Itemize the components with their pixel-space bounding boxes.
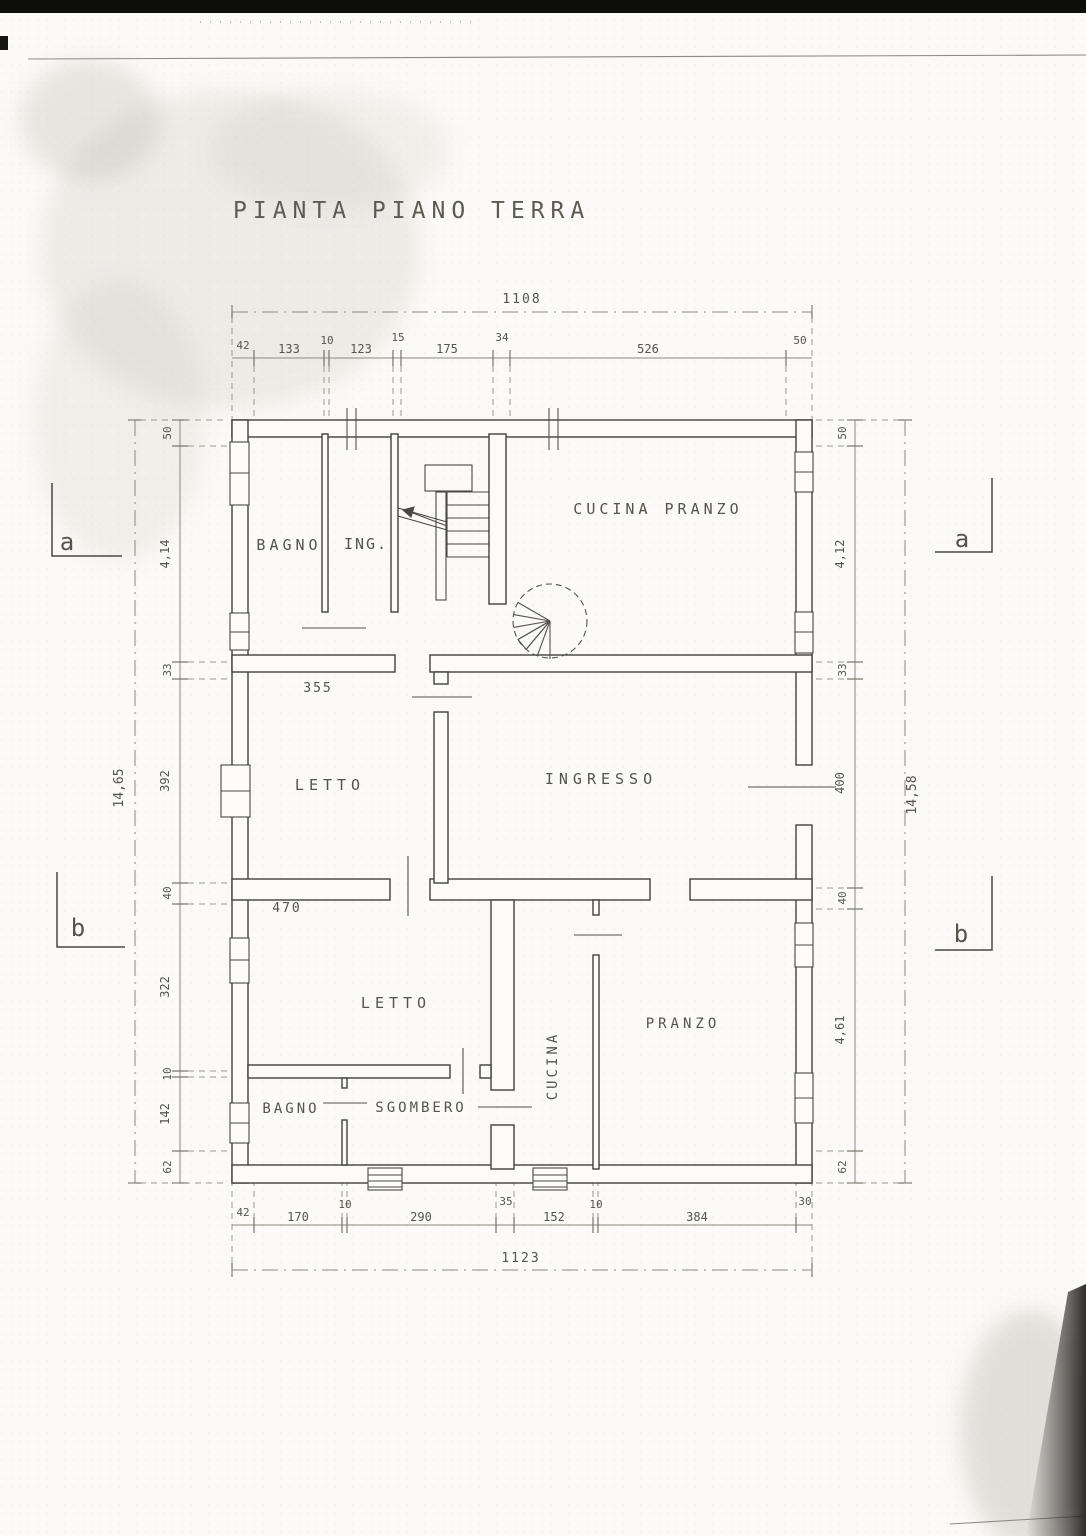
wall-bagno-ing: [322, 434, 328, 612]
room-label-cucina-pranzo: CUCINA PRANZO: [573, 500, 742, 518]
dim-top-9: 50: [793, 334, 806, 347]
outer-wall-bottom: [232, 1165, 812, 1183]
wall-ing-stair: [391, 434, 398, 612]
dim-bottom-total: 1123: [501, 1251, 540, 1266]
section-marker-a-right: a: [955, 525, 969, 553]
room-label-bagno-bottom: BAGNO: [262, 1101, 319, 1117]
wall-h2-b: [430, 879, 650, 900]
room-label-ingresso: INGRESSO: [545, 770, 657, 788]
wall-h3-b: [480, 1065, 491, 1078]
dim-top-1: 42: [236, 339, 249, 352]
wall-cucina-pranzo: [593, 955, 599, 1169]
wall-cucina-pranzo-stub: [593, 900, 599, 915]
dim-right-5: 40: [836, 891, 849, 904]
section-marker-b-left: b: [71, 914, 85, 942]
dim-left-1: 50: [161, 426, 174, 439]
scan-artifacts: [0, 0, 1086, 1536]
dim-top-2: 133: [278, 342, 300, 356]
wall-h1-left: [232, 655, 395, 672]
wall-bagno-sgombero-stub: [342, 1078, 347, 1088]
room-label-bagno-top: BAGNO: [256, 536, 321, 554]
dim-letto-bottom-width: 470: [272, 901, 301, 916]
dim-bottom-1: 42: [236, 1206, 249, 1219]
dim-top-7: 34: [495, 331, 509, 344]
dim-left-2: 4,14: [158, 540, 172, 569]
dim-letto-mid-width: 355: [303, 681, 332, 696]
dim-top-total: 1108: [502, 292, 541, 307]
wall-h2-c: [690, 879, 812, 900]
dim-right-2: 4,12: [833, 540, 847, 569]
scan-top-bar: [0, 0, 1086, 13]
dim-bottom-5: 35: [499, 1195, 512, 1208]
dim-right-1: 50: [836, 426, 849, 439]
dim-right-4: 400: [833, 772, 847, 794]
wall-letto-ingresso-stub: [434, 672, 448, 684]
room-label-letto-mid: LETTO: [295, 776, 365, 794]
dim-right-total: 14,58: [905, 775, 920, 814]
dim-left-7: 10: [161, 1067, 174, 1080]
dim-top-3: 10: [320, 334, 333, 347]
dim-top-6: 175: [436, 342, 458, 356]
room-label-cucina: CUCINA: [545, 1032, 561, 1101]
dim-top-5: 15: [391, 331, 404, 344]
room-label-ing: ING.: [344, 535, 388, 553]
dim-right-7: 62: [836, 1160, 849, 1173]
dim-bottom-7: 10: [589, 1198, 602, 1211]
wall-stair-cucina: [489, 434, 506, 604]
wall-h1-right: [430, 655, 812, 672]
section-marker-a-left: a: [60, 528, 74, 556]
dim-left-5: 40: [161, 886, 174, 899]
dim-left-8: 142: [158, 1103, 172, 1125]
wall-letto-ingresso: [434, 712, 448, 883]
wall-sgombero-cucina-lower: [491, 1125, 514, 1169]
floor-plan-drawing: PIANTA PIANO TERRABAGNOING.CUCINA PRANZO…: [0, 0, 1086, 1536]
dim-left-9: 62: [161, 1160, 174, 1173]
outer-wall-top: [232, 420, 812, 437]
dim-top-4: 123: [350, 342, 372, 356]
dim-bottom-3: 10: [338, 1198, 351, 1211]
dim-top-8: 526: [637, 342, 659, 356]
room-label-pranzo: PRANZO: [646, 1016, 721, 1032]
room-label-sgombero: SGOMBERO: [375, 1100, 466, 1116]
dim-bottom-2: 170: [287, 1210, 309, 1224]
wall-bagno-sgombero: [342, 1120, 347, 1165]
dim-left-6: 322: [158, 976, 172, 998]
scanned-floor-plan-page: PIANTA PIANO TERRABAGNOING.CUCINA PRANZO…: [0, 0, 1086, 1536]
room-label-letto-bottom: LETTO: [361, 994, 431, 1012]
wall-sgombero-cucina-upper: [491, 900, 514, 1090]
dim-bottom-9: 30: [798, 1195, 811, 1208]
dim-left-4: 392: [158, 770, 172, 792]
page-title: PIANTA PIANO TERRA: [233, 198, 590, 224]
dim-bottom-4: 290: [410, 1210, 432, 1224]
dim-right-6: 4,61: [833, 1016, 847, 1045]
dim-right-3: 33: [836, 663, 849, 676]
section-marker-b-right: b: [954, 920, 968, 948]
wall-h2-a: [232, 879, 390, 900]
wall-h3-a: [248, 1065, 450, 1078]
dim-bottom-8: 384: [686, 1210, 708, 1224]
dim-bottom-6: 152: [543, 1210, 565, 1224]
dim-left-total: 14,65: [112, 768, 127, 807]
dim-left-3: 33: [161, 663, 174, 676]
